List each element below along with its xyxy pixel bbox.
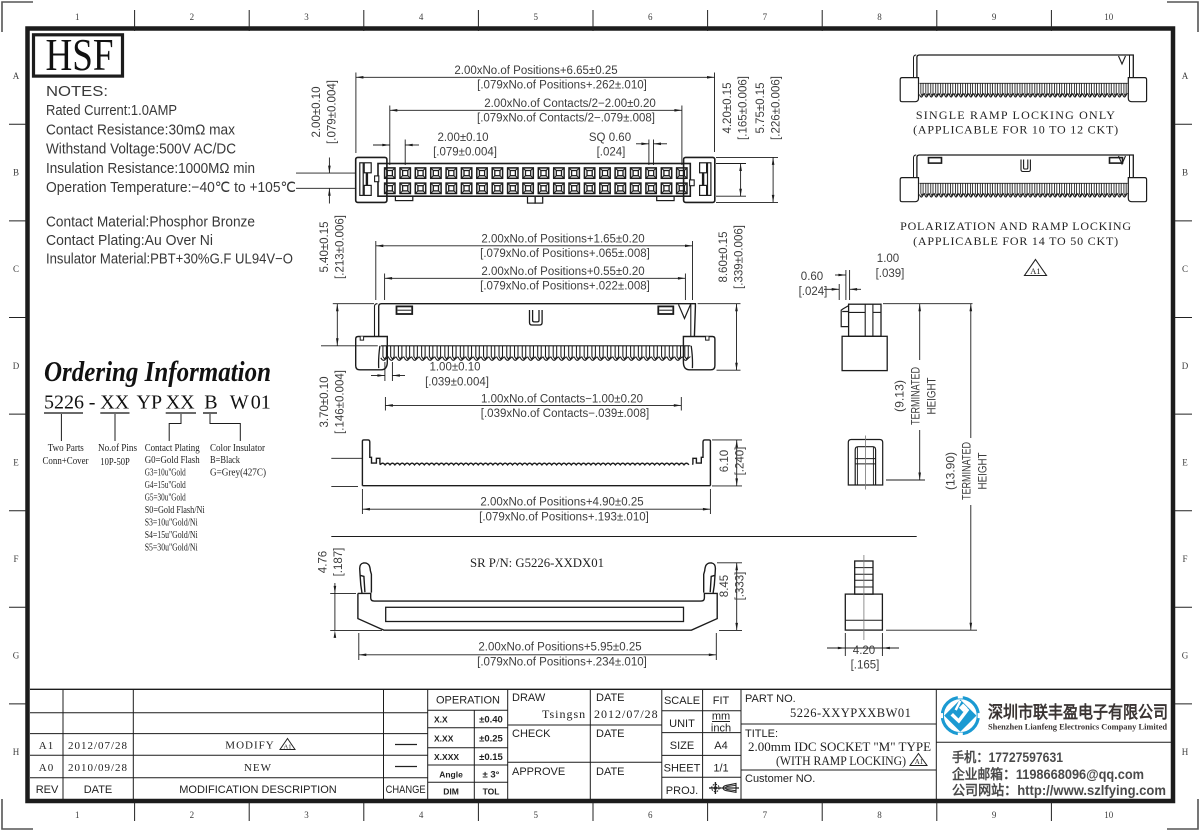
svg-text:SCALE: SCALE bbox=[664, 695, 700, 707]
svg-text:S5=30u"Gold/Ni: S5=30u"Gold/Ni bbox=[145, 543, 198, 554]
svg-text:FIT: FIT bbox=[713, 695, 730, 707]
svg-text:SINGLE RAMP LOCKING ONLY: SINGLE RAMP LOCKING ONLY bbox=[916, 108, 1116, 122]
svg-text:[.226±0.006]: [.226±0.006] bbox=[771, 76, 783, 140]
svg-text:01: 01 bbox=[251, 391, 271, 413]
svg-text:±0.15: ±0.15 bbox=[479, 752, 503, 763]
svg-text:Shenzhen Lianfeng Electronics: Shenzhen Lianfeng Electronics Company Li… bbox=[988, 722, 1167, 732]
svg-text:A: A bbox=[1182, 71, 1189, 81]
svg-text:2012/07/28: 2012/07/28 bbox=[594, 707, 659, 721]
svg-text:[.146±0.004]: [.146±0.004] bbox=[335, 370, 347, 434]
svg-text:YP: YP bbox=[137, 391, 163, 413]
svg-text:HSF: HSF bbox=[46, 29, 114, 80]
svg-text:8.60±0.15: 8.60±0.15 bbox=[718, 231, 730, 282]
svg-text:A: A bbox=[13, 71, 20, 81]
svg-text:3.70±0.10: 3.70±0.10 bbox=[319, 376, 331, 427]
svg-text:± 3°: ± 3° bbox=[483, 770, 500, 781]
svg-text:6: 6 bbox=[648, 810, 653, 820]
svg-text:4.20±0.15: 4.20±0.15 bbox=[722, 82, 734, 133]
svg-text:S4=15u"Gold/Ni: S4=15u"Gold/Ni bbox=[145, 530, 198, 541]
svg-text:1: 1 bbox=[75, 810, 80, 820]
svg-text:5: 5 bbox=[533, 12, 538, 22]
svg-text:A0: A0 bbox=[39, 762, 54, 774]
svg-text:UNIT: UNIT bbox=[669, 718, 695, 730]
svg-text:B: B bbox=[204, 391, 217, 413]
svg-text:G: G bbox=[1182, 651, 1189, 661]
svg-text:Color Insulator: Color Insulator bbox=[210, 443, 265, 454]
svg-text:No.of Pins: No.of Pins bbox=[98, 443, 137, 454]
svg-text:E: E bbox=[13, 457, 19, 467]
svg-text:G0=Gold Flash: G0=Gold Flash bbox=[145, 455, 201, 466]
svg-text:[.079xNo.of Positions+.022±.0: [.079xNo.of Positions+.022±.008] bbox=[480, 281, 650, 293]
svg-text:X.X: X.X bbox=[434, 715, 448, 725]
svg-text:5226-XXYPXXBW01: 5226-XXYPXXBW01 bbox=[790, 706, 911, 720]
svg-text:MODIFY: MODIFY bbox=[225, 740, 274, 752]
svg-text:±0.25: ±0.25 bbox=[479, 734, 503, 745]
svg-text:DATE: DATE bbox=[84, 784, 113, 796]
svg-text:2: 2 bbox=[190, 810, 195, 820]
svg-text:G3=10u"Gold: G3=10u"Gold bbox=[145, 468, 187, 479]
svg-text:Angle: Angle bbox=[439, 770, 463, 780]
svg-text:3: 3 bbox=[304, 12, 309, 22]
svg-text:B: B bbox=[13, 168, 19, 178]
svg-text:Contact Resistance:30mΩ max: Contact Resistance:30mΩ max bbox=[46, 122, 236, 138]
svg-text:[.024]: [.024] bbox=[597, 147, 626, 159]
svg-text:REV: REV bbox=[36, 784, 59, 796]
svg-text:4.20: 4.20 bbox=[853, 645, 875, 657]
svg-text:1.00±0.10: 1.00±0.10 bbox=[429, 362, 480, 374]
svg-text:0.60: 0.60 bbox=[801, 271, 823, 283]
svg-text:2.00xNo.of Positions+5.95±0.2: 2.00xNo.of Positions+5.95±0.25 bbox=[478, 642, 641, 654]
svg-text:Customer NO.: Customer NO. bbox=[745, 773, 815, 785]
svg-text:[.079xNo.of Positions+.065±.0: [.079xNo.of Positions+.065±.008] bbox=[480, 248, 650, 260]
svg-text:2.00±0.10: 2.00±0.10 bbox=[311, 86, 323, 137]
svg-text:(9.13): (9.13) bbox=[895, 380, 907, 412]
svg-text:XX: XX bbox=[100, 391, 129, 413]
svg-text:CHECK: CHECK bbox=[512, 728, 551, 740]
svg-text:2012/07/28: 2012/07/28 bbox=[68, 740, 128, 752]
svg-text:E: E bbox=[1182, 457, 1188, 467]
svg-text:F: F bbox=[1182, 554, 1187, 564]
svg-text:H: H bbox=[13, 747, 20, 757]
svg-text:2: 2 bbox=[190, 12, 195, 22]
svg-text:X.XX: X.XX bbox=[434, 734, 454, 744]
svg-text:Contact Plating: Contact Plating bbox=[145, 443, 201, 454]
svg-text:±0.40: ±0.40 bbox=[479, 715, 503, 726]
svg-text:[.024]: [.024] bbox=[799, 286, 828, 298]
svg-text:X.XXX: X.XXX bbox=[434, 752, 459, 762]
svg-text:9: 9 bbox=[992, 12, 997, 22]
svg-text:8: 8 bbox=[877, 12, 882, 22]
svg-text:XX: XX bbox=[166, 391, 195, 413]
svg-text:1.00xNo.of Contacts−1.00±0.20: 1.00xNo.of Contacts−1.00±0.20 bbox=[481, 394, 643, 406]
svg-text:[.039]: [.039] bbox=[876, 268, 905, 280]
svg-text:DATE: DATE bbox=[596, 692, 625, 704]
svg-text:DRAW: DRAW bbox=[512, 692, 546, 704]
svg-text:G: G bbox=[13, 651, 20, 661]
svg-text:10: 10 bbox=[1104, 810, 1114, 820]
svg-text:HEIGHT: HEIGHT bbox=[927, 378, 939, 415]
svg-text:(13.90): (13.90) bbox=[946, 452, 958, 490]
svg-text:企业邮箱：1198668096@qq.com: 企业邮箱：1198668096@qq.com bbox=[951, 766, 1144, 782]
svg-text:[.039±0.004]: [.039±0.004] bbox=[425, 377, 489, 389]
svg-text:C: C bbox=[1182, 264, 1188, 274]
svg-text:TOL: TOL bbox=[483, 787, 500, 797]
svg-text:SHEET: SHEET bbox=[664, 763, 701, 775]
svg-text:A1: A1 bbox=[39, 740, 54, 752]
svg-text:HEIGHT: HEIGHT bbox=[978, 453, 990, 490]
svg-text:Operation Temperature:−40℃ t: Operation Temperature:−40℃ to +105℃ bbox=[46, 180, 296, 196]
svg-text:2.00mm IDC SOCKET "M" TYPE: 2.00mm IDC SOCKET "M" TYPE bbox=[748, 739, 931, 754]
svg-text:(WITH RAMP LOCKING): (WITH RAMP LOCKING) bbox=[776, 753, 906, 768]
svg-text:4: 4 bbox=[419, 810, 424, 820]
svg-text:PART NO.: PART NO. bbox=[745, 693, 796, 705]
svg-text:[.213±0.006]: [.213±0.006] bbox=[335, 215, 347, 279]
svg-text:5226: 5226 bbox=[44, 391, 84, 413]
svg-text:Contact Plating:Au Over Ni: Contact Plating:Au Over Ni bbox=[46, 233, 213, 249]
svg-text:inch: inch bbox=[711, 723, 731, 735]
svg-text:2.00xNo.of Positions+4.90±0.2: 2.00xNo.of Positions+4.90±0.25 bbox=[480, 497, 643, 509]
svg-text:2.00xNo.of Positions+0.55±0.2: 2.00xNo.of Positions+0.55±0.20 bbox=[481, 266, 644, 278]
svg-text:5: 5 bbox=[533, 810, 538, 820]
svg-text:D: D bbox=[1182, 361, 1189, 371]
svg-text:Insulation Resistance:1000MΩ: Insulation Resistance:1000MΩ min bbox=[46, 161, 255, 177]
svg-text:10: 10 bbox=[1104, 12, 1114, 22]
svg-text:[.333]: [.333] bbox=[735, 572, 747, 601]
svg-text:F: F bbox=[13, 554, 18, 564]
svg-text:6: 6 bbox=[648, 12, 653, 22]
svg-text:D: D bbox=[13, 361, 20, 371]
svg-text:7: 7 bbox=[763, 810, 768, 820]
svg-text:A1: A1 bbox=[284, 744, 292, 751]
svg-text:2.00xNo.of Positions+1.65±0.2: 2.00xNo.of Positions+1.65±0.20 bbox=[481, 234, 644, 246]
svg-text:B: B bbox=[1182, 168, 1188, 178]
svg-text:2.00xNo.of Positions+6.65±0.2: 2.00xNo.of Positions+6.65±0.25 bbox=[454, 65, 617, 77]
svg-text:1.00: 1.00 bbox=[877, 253, 899, 265]
svg-text:[.079±0.004]: [.079±0.004] bbox=[327, 80, 339, 144]
svg-text:mm: mm bbox=[712, 711, 730, 723]
svg-text:TERMINATED: TERMINATED bbox=[911, 367, 923, 425]
svg-text:APPROVE: APPROVE bbox=[512, 766, 565, 778]
svg-text:[.240]: [.240] bbox=[735, 447, 747, 476]
svg-text:8: 8 bbox=[877, 810, 882, 820]
svg-text:A1: A1 bbox=[915, 758, 924, 766]
svg-text:CHANGE: CHANGE bbox=[386, 784, 426, 796]
svg-text:[.165]: [.165] bbox=[851, 660, 880, 672]
svg-text:4.76: 4.76 bbox=[318, 551, 330, 573]
svg-text:H: H bbox=[1182, 747, 1189, 757]
svg-text:[.079xNo.of Contacts/2−.079±.: [.079xNo.of Contacts/2−.079±.008] bbox=[477, 113, 655, 125]
svg-text:4: 4 bbox=[419, 12, 424, 22]
svg-text:3: 3 bbox=[304, 810, 309, 820]
svg-text:S0=Gold Flash/Ni: S0=Gold Flash/Ni bbox=[145, 505, 205, 516]
svg-text:5.40±0.15: 5.40±0.15 bbox=[319, 221, 331, 272]
svg-text:6.10: 6.10 bbox=[719, 450, 731, 472]
svg-text:Rated Current:1.0AMP: Rated Current:1.0AMP bbox=[46, 103, 177, 119]
svg-text:2.00xNo.of Contacts/2−2.00±0.: 2.00xNo.of Contacts/2−2.00±0.20 bbox=[484, 98, 656, 110]
svg-text:G5=30u"Gold: G5=30u"Gold bbox=[145, 493, 187, 504]
svg-text:(APPLICABLE FOR 10 TO 12 CKT): (APPLICABLE FOR 10 TO 12 CKT) bbox=[913, 123, 1119, 137]
svg-text:公司网站：http://www.szlfying.com: 公司网站：http://www.szlfying.com bbox=[952, 782, 1166, 798]
svg-text:S3=10u"Gold/Ni: S3=10u"Gold/Ni bbox=[145, 518, 198, 529]
svg-text:TERMINATED: TERMINATED bbox=[962, 442, 974, 500]
svg-text:-: - bbox=[89, 391, 96, 413]
svg-text:DATE: DATE bbox=[596, 766, 625, 778]
svg-text:手机：17727597631: 手机：17727597631 bbox=[952, 749, 1063, 765]
svg-text:DATE: DATE bbox=[596, 728, 625, 740]
svg-text:SIZE: SIZE bbox=[670, 740, 694, 752]
svg-text:[.187]: [.187] bbox=[333, 548, 345, 577]
svg-text:7: 7 bbox=[763, 12, 768, 22]
svg-text:2.00±0.10: 2.00±0.10 bbox=[437, 132, 488, 144]
svg-text:MODIFICATION DESCRIPTION: MODIFICATION DESCRIPTION bbox=[179, 784, 337, 796]
svg-text:1: 1 bbox=[75, 12, 80, 22]
svg-text:[.039xNo.of Contacts−.039±.00: [.039xNo.of Contacts−.039±.008] bbox=[481, 408, 649, 420]
svg-text:DIM: DIM bbox=[443, 787, 459, 797]
svg-text:G4=15u"Gold: G4=15u"Gold bbox=[145, 480, 187, 491]
svg-text:Tsingsn: Tsingsn bbox=[542, 707, 586, 721]
svg-text:Two Parts: Two Parts bbox=[48, 443, 84, 454]
svg-text:PROJ.: PROJ. bbox=[666, 785, 698, 797]
svg-text:[.165±0.006]: [.165±0.006] bbox=[738, 76, 750, 140]
svg-text:OPERATION: OPERATION bbox=[436, 695, 500, 707]
svg-text:C: C bbox=[13, 264, 19, 274]
svg-text:8.45: 8.45 bbox=[719, 575, 731, 597]
svg-text:B=Black: B=Black bbox=[210, 455, 241, 466]
svg-text:[.079xNo.of Positions+.234±.0: [.079xNo.of Positions+.234±.010] bbox=[477, 657, 647, 669]
svg-text:SQ 0.60: SQ 0.60 bbox=[589, 132, 631, 144]
svg-text:W: W bbox=[230, 391, 249, 413]
svg-text:深圳市联丰盈电子有限公司: 深圳市联丰盈电子有限公司 bbox=[988, 702, 1168, 722]
svg-text:NOTES:: NOTES: bbox=[46, 84, 108, 100]
svg-text:Conn+Cover: Conn+Cover bbox=[43, 456, 89, 467]
svg-text:[.339±0.006]: [.339±0.006] bbox=[734, 225, 746, 289]
svg-text:G=Grey(427C): G=Grey(427C) bbox=[210, 468, 266, 479]
svg-text:[.079xNo.of Positions+.262±.0: [.079xNo.of Positions+.262±.010] bbox=[477, 80, 647, 92]
svg-text:Insulator Material:PBT+30%G.F: Insulator Material:PBT+30%G.F UL94V−O bbox=[46, 252, 293, 268]
svg-text:Withstand Voltage:500V AC/DC: Withstand Voltage:500V AC/DC bbox=[46, 142, 236, 158]
svg-text:Ordering Information: Ordering Information bbox=[44, 356, 271, 388]
svg-text:10P-50P: 10P-50P bbox=[100, 457, 130, 468]
svg-text:9: 9 bbox=[992, 810, 997, 820]
svg-text:Contact Material:Phosphor Br: Contact Material:Phosphor Bronze bbox=[46, 215, 255, 231]
svg-text:A1: A1 bbox=[1030, 266, 1040, 276]
svg-text:2010/09/28: 2010/09/28 bbox=[68, 762, 128, 774]
svg-text:NEW: NEW bbox=[244, 762, 272, 774]
svg-text:5.75±0.15: 5.75±0.15 bbox=[755, 82, 767, 133]
svg-text:(APPLICABLE FOR 14 TO 50 CKT): (APPLICABLE FOR 14 TO 50 CKT) bbox=[913, 234, 1119, 248]
svg-text:SR P/N: G5226-XXDX01: SR P/N: G5226-XXDX01 bbox=[470, 555, 604, 570]
svg-text:1/1: 1/1 bbox=[713, 763, 728, 775]
svg-text:[.079xNo.of Positions+.193±.0: [.079xNo.of Positions+.193±.010] bbox=[479, 512, 649, 524]
svg-text:A4: A4 bbox=[714, 740, 727, 752]
svg-text:[.079±0.004]: [.079±0.004] bbox=[433, 147, 497, 159]
svg-text:POLARIZATION AND RAMP LOCKING: POLARIZATION AND RAMP LOCKING bbox=[900, 219, 1132, 233]
